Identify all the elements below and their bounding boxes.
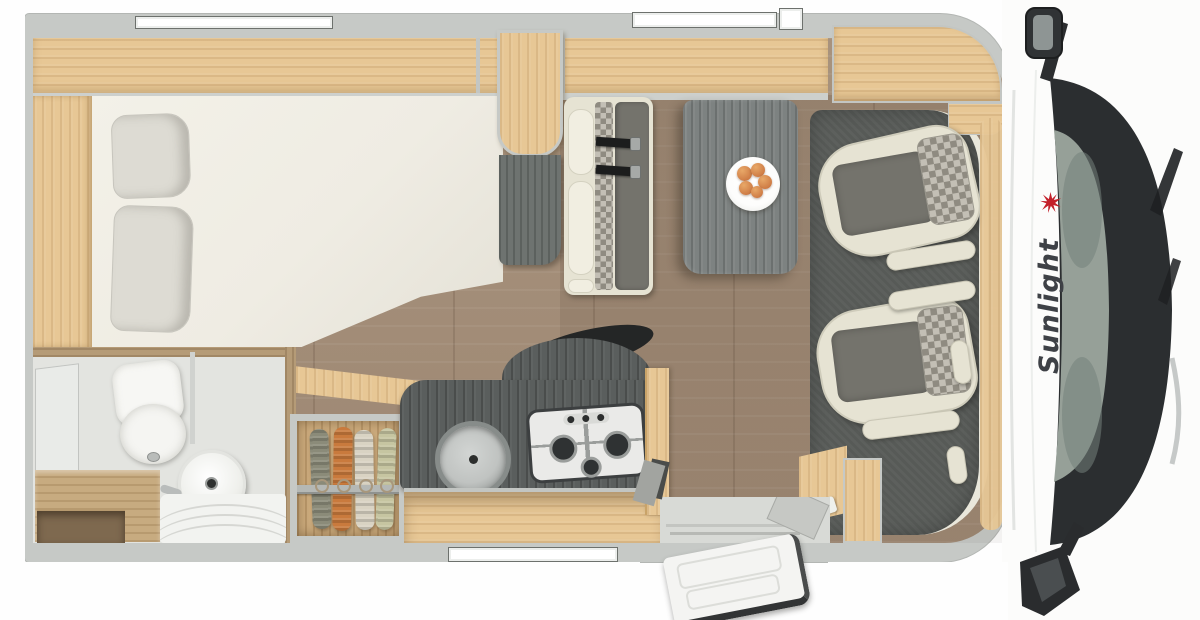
exterior-margin-bottom-right	[828, 562, 1008, 620]
tall-cabinet-tower	[497, 30, 563, 157]
step-edge	[666, 524, 786, 527]
cabinet-divider	[476, 38, 480, 95]
fruit	[751, 186, 763, 198]
hob-burner	[548, 434, 578, 464]
hob-burner	[580, 456, 602, 478]
brand-logo: Sunlight	[1034, 216, 1066, 396]
bench-backrest-checker	[595, 102, 613, 290]
bed-headboard-shelf	[33, 96, 92, 347]
seat-center-panel	[830, 320, 932, 403]
floorplan-canvas: Sunlight	[0, 0, 1200, 620]
hanger-hook-icon	[359, 479, 373, 493]
bottom-window	[448, 547, 618, 562]
overhead-cabinet-top	[33, 38, 828, 95]
sink-drain	[469, 455, 478, 464]
dashboard-shape	[1062, 152, 1102, 268]
bed-pillow	[111, 113, 192, 200]
vanity-open-shelf	[37, 508, 125, 543]
shower-partition	[190, 352, 195, 444]
entry-step-area	[660, 497, 830, 543]
hanger-hook-icon	[337, 479, 351, 493]
shower-tray	[160, 494, 286, 543]
dinette-sideboard	[499, 155, 561, 265]
basin-drain	[205, 477, 218, 490]
cab-dash-wood-strip	[980, 118, 1002, 530]
gas-hob	[526, 402, 649, 484]
body-seam	[1011, 90, 1014, 530]
toilet-flush-button	[147, 452, 160, 462]
bathroom-wall-top	[33, 347, 295, 357]
cab-front-graphic	[1002, 0, 1200, 620]
exterior-margin-left	[0, 0, 25, 620]
top-mirror-glass	[1033, 15, 1053, 50]
belt-buckle	[630, 137, 641, 151]
top-window	[135, 16, 333, 29]
hob-burner	[602, 430, 632, 460]
bench-headrest-pad	[568, 279, 594, 293]
hanger-hook-icon	[380, 479, 394, 493]
kitchen-base-cabinet	[404, 488, 666, 543]
dinette-bench	[564, 97, 653, 295]
belt-buckle	[630, 165, 641, 179]
hanger-hook-icon	[315, 479, 329, 493]
chrome-trim	[1172, 358, 1179, 464]
top-window-2	[632, 12, 777, 28]
bench-headrest-pad	[568, 181, 594, 275]
bench-seat-cushion	[615, 102, 649, 290]
exterior-margin-bottom	[0, 562, 640, 620]
step-edge	[670, 532, 800, 535]
wardrobe	[290, 414, 406, 543]
fruit	[737, 166, 752, 181]
dashboard-shape	[1062, 357, 1102, 473]
bed-pillow	[110, 205, 194, 334]
door-side-cabinet	[843, 458, 882, 543]
bench-headrest-pad	[568, 109, 594, 175]
roof-vent	[779, 8, 803, 30]
